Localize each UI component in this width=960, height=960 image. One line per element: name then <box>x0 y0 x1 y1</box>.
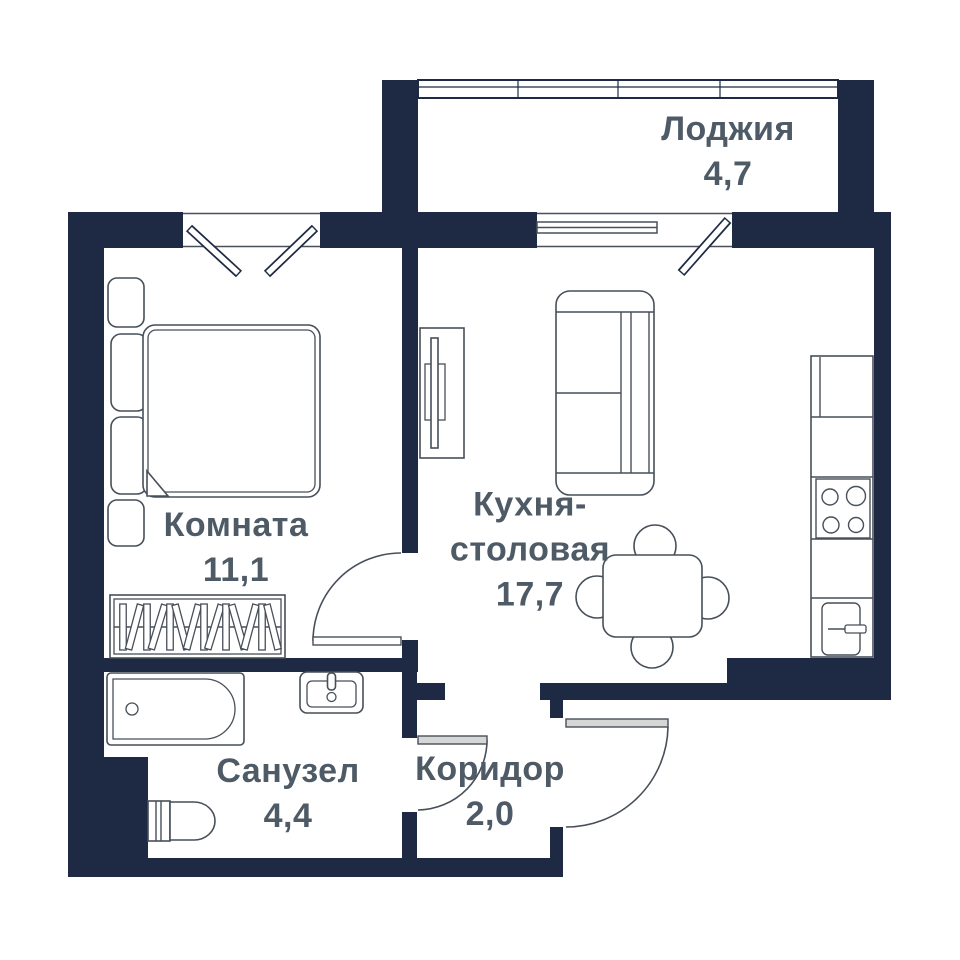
toilet-bowl <box>170 802 215 840</box>
label-loggia: Лоджия 4,7 <box>661 107 795 197</box>
room-name: Кухня- <box>450 483 610 528</box>
wall-top-mid <box>320 212 537 248</box>
wall-room-bath <box>104 658 418 672</box>
wall-bath-block <box>104 757 148 858</box>
door-swing-arc <box>313 553 401 641</box>
balcony-window-and-door <box>537 214 732 274</box>
room-area: 4,4 <box>216 794 359 839</box>
room-area: 11,1 <box>164 548 309 593</box>
floor-plan: Лоджия 4,7 Комната 11,1 Кухня- столовая … <box>0 0 960 960</box>
bed-outline <box>143 325 320 497</box>
wall-right-outer <box>874 212 891 700</box>
glazing-strip <box>418 80 838 98</box>
faucet-icon <box>328 673 336 690</box>
room-area: 17,7 <box>450 573 610 618</box>
loggia-window-band <box>418 80 838 98</box>
wall-kitchen-bottom-thick <box>727 658 891 700</box>
label-corridor: Коридор 2,0 <box>415 747 565 837</box>
room-door <box>313 553 401 645</box>
wall-bottom <box>68 858 563 877</box>
bedroom-window <box>183 214 320 275</box>
room-area: 4,7 <box>661 152 795 197</box>
room-name: Лоджия <box>661 107 795 152</box>
wall-top-right <box>732 212 891 248</box>
toilet <box>148 801 215 841</box>
tv-screen <box>431 338 438 448</box>
wall-left <box>68 212 104 877</box>
door-leaf <box>313 637 401 645</box>
door-leaf <box>566 719 668 727</box>
wall-bath-corridor-upper <box>402 672 417 738</box>
room-name: столовая <box>450 528 610 573</box>
dining-table <box>603 555 702 637</box>
window-sash-left-icon <box>189 228 239 274</box>
pillow <box>111 417 147 494</box>
nightstand <box>108 278 144 327</box>
wall-top-left <box>68 212 183 248</box>
sofa <box>556 291 654 495</box>
room-area: 2,0 <box>415 792 565 837</box>
wall-loggia-right <box>838 80 874 214</box>
wardrobe <box>110 595 285 658</box>
cistern <box>148 801 170 841</box>
wall-kitchen-bottom-thin <box>540 683 727 700</box>
label-room: Комната 11,1 <box>164 503 309 593</box>
label-kitchen: Кухня- столовая 17,7 <box>450 483 610 618</box>
bathtub-outline <box>107 673 244 745</box>
pillow <box>111 334 147 411</box>
window-sash-right-icon <box>267 228 315 274</box>
room-name: Комната <box>164 503 309 548</box>
door-swing-arc <box>566 727 668 827</box>
nightstand <box>108 500 144 546</box>
label-bathroom: Санузел 4,4 <box>216 749 359 839</box>
wall-corridor-right-top <box>550 683 563 718</box>
wall-room-kitchen-upper <box>402 248 418 553</box>
wall-room-kitchen-lower <box>402 640 418 672</box>
entrance-door <box>566 719 668 827</box>
tv-stand <box>420 328 464 458</box>
room-name: Санузел <box>216 749 359 794</box>
kitchen-counter <box>811 356 873 657</box>
room-name: Коридор <box>415 747 565 792</box>
wall-loggia-left <box>382 80 418 248</box>
door-leaf <box>418 736 487 744</box>
bathtub <box>107 673 244 745</box>
washbasin <box>300 672 363 713</box>
tv-cabinet <box>420 328 464 458</box>
wall-corridor-stub <box>417 683 445 700</box>
